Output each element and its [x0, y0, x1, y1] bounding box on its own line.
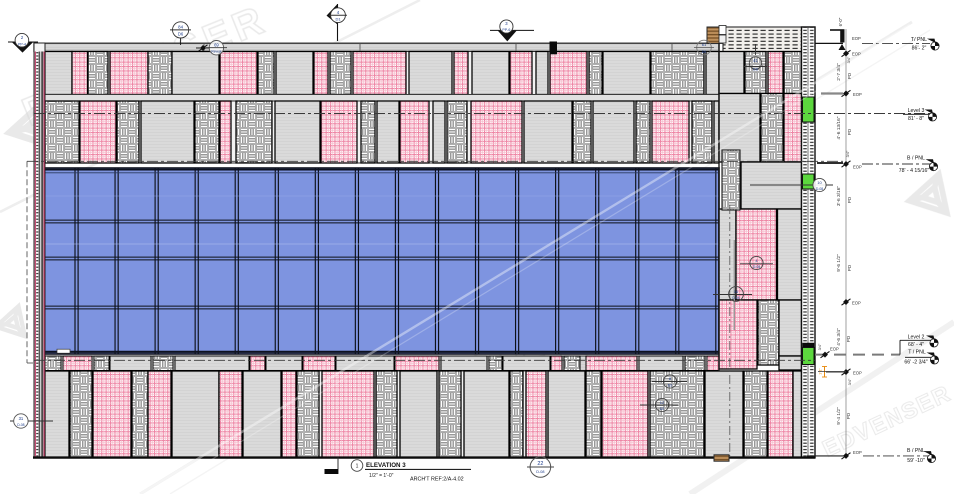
svg-text:69: 69 [214, 42, 219, 47]
svg-text:EOP: EOP [852, 36, 861, 41]
svg-text:Level 2: Level 2 [908, 335, 925, 341]
svg-text:D6: D6 [702, 50, 707, 54]
svg-text:10: 10 [817, 180, 822, 185]
svg-text:EOP: EOP [853, 92, 862, 97]
svg-text:B / PNL: B / PNL [907, 156, 925, 162]
svg-text:22: 22 [537, 461, 543, 467]
svg-text:EOP: EOP [853, 165, 862, 170]
svg-text:EOP: EOP [830, 347, 839, 352]
svg-text:3/4": 3/4" [818, 343, 822, 350]
svg-text:1: 1 [356, 464, 359, 470]
svg-text:3'-6 3/16": 3'-6 3/16" [836, 186, 842, 207]
svg-text:PP-4: PP-4 [18, 42, 26, 46]
svg-text:1/2" = 1'-0": 1/2" = 1'-0" [369, 473, 394, 479]
svg-text:PD: PD [847, 264, 852, 271]
svg-text:B / PNL: B / PNL [907, 448, 925, 454]
svg-text:EOP: EOP [853, 371, 862, 376]
svg-text:68' - 4": 68' - 4" [908, 342, 924, 348]
svg-text:PP-6: PP-6 [502, 28, 510, 32]
svg-text:Reveal: Reveal [211, 50, 221, 54]
svg-text:D-08: D-08 [732, 296, 739, 300]
svg-text:T / PNL: T / PNL [908, 350, 926, 356]
svg-text:3/4": 3/4" [848, 378, 852, 385]
svg-text:59' -10": 59' -10" [907, 458, 925, 464]
svg-text:PD: PD [846, 412, 851, 419]
svg-text:EOP: EOP [852, 301, 861, 306]
svg-text:PD: PD [846, 335, 851, 342]
svg-text:61: 61 [702, 42, 707, 47]
svg-text:D-08: D-08 [816, 187, 823, 191]
svg-text:41: 41 [753, 58, 758, 63]
svg-text:PD: PD [847, 196, 852, 203]
svg-text:ARCH'T REF:2/A-4.02: ARCH'T REF:2/A-4.02 [410, 477, 464, 483]
svg-text:D-08: D-08 [536, 470, 544, 474]
svg-text:EOP: EOP [852, 52, 861, 57]
svg-text:16: 16 [734, 289, 739, 294]
svg-text:78' - 4 15/16": 78' - 4 15/16" [899, 168, 930, 174]
svg-text:D6: D6 [753, 66, 759, 71]
svg-text:D6: D6 [178, 32, 184, 37]
svg-text:4'-6 3/4": 4'-6 3/4" [836, 328, 842, 346]
svg-text:D2: D2 [668, 383, 673, 387]
svg-text:4'-6 13/16": 4'-6 13/16" [836, 116, 842, 139]
svg-text:D-08: D-08 [753, 265, 760, 269]
svg-text:2'-7 3/4": 2'-7 3/4" [836, 63, 842, 81]
svg-text:9'-6 1/2": 9'-6 1/2" [836, 254, 842, 272]
svg-text:D2: D2 [660, 407, 665, 411]
svg-text:3/4": 3/4" [846, 150, 850, 157]
svg-text:D-08: D-08 [17, 423, 24, 427]
svg-text:Level 3: Level 3 [908, 108, 925, 114]
svg-text:12: 12 [660, 400, 665, 405]
svg-text:T/ PNL: T/ PNL [911, 37, 927, 43]
svg-text:PD: PD [847, 72, 852, 79]
svg-text:86'- 2": 86'- 2" [912, 46, 927, 52]
svg-text:66' -2 3/4": 66' -2 3/4" [904, 360, 927, 366]
svg-text:ELEVATION 3: ELEVATION 3 [366, 462, 406, 469]
svg-text:84: 84 [178, 24, 183, 29]
svg-text:PD: PD [847, 128, 852, 135]
svg-text:3/4": 3/4" [847, 56, 851, 63]
svg-text:9'-4 1/2": 9'-4 1/2" [836, 407, 842, 425]
svg-text:6'-0": 6'-0" [838, 17, 843, 26]
svg-text:D1: D1 [335, 17, 341, 22]
svg-text:81' - 8": 81' - 8" [908, 116, 924, 122]
svg-text:31: 31 [19, 416, 24, 421]
svg-text:EOP: EOP [853, 450, 862, 455]
